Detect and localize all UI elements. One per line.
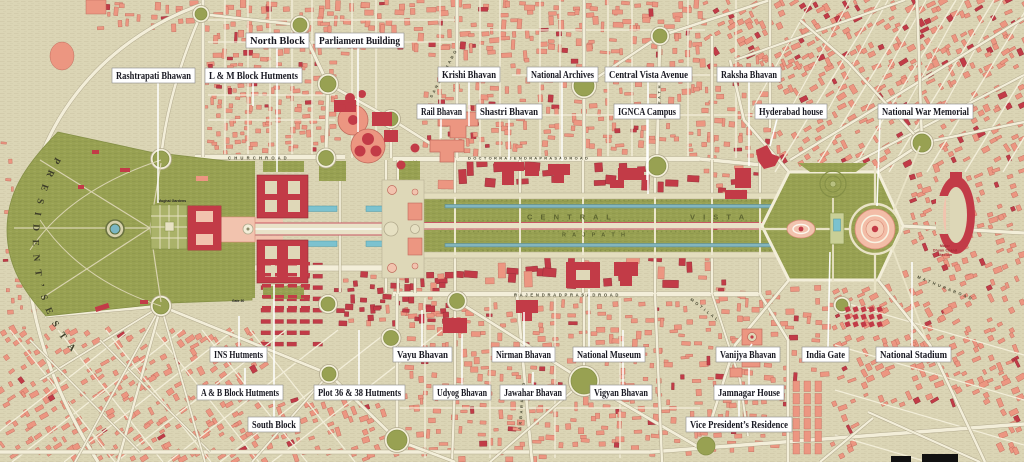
svg-text:National Museum: National Museum: [577, 349, 641, 361]
svg-text:Stadium: Stadium: [938, 253, 953, 257]
svg-text:National War Memorial: National War Memorial: [882, 106, 969, 118]
svg-text:Dhyan Chand: Dhyan Chand: [933, 249, 957, 253]
svg-text:North Block: North Block: [250, 35, 306, 47]
svg-text:R A J P A T H: R A J P A T H: [562, 233, 627, 239]
svg-text:Central Vista Avenue: Central Vista Avenue: [609, 69, 688, 81]
svg-text:Vigyan Bhavan: Vigyan Bhavan: [594, 387, 648, 399]
svg-text:Vice President’s Residence: Vice President’s Residence: [690, 419, 788, 431]
svg-text:Parliament Building: Parliament Building: [319, 35, 400, 47]
svg-text:Vanijya Bhavan: Vanijya Bhavan: [720, 349, 776, 361]
svg-text:Jawahar Bhavan: Jawahar Bhavan: [504, 387, 562, 399]
svg-text:Rashtrapati Bhawan: Rashtrapati Bhawan: [116, 70, 191, 82]
svg-text:South Block: South Block: [252, 419, 297, 431]
svg-text:Raksha Bhavan: Raksha Bhavan: [721, 69, 777, 81]
svg-text:India Gate: India Gate: [806, 349, 845, 361]
svg-text:A & B Block Hutments: A & B Block Hutments: [201, 387, 280, 399]
svg-text:IGNCA Campus: IGNCA Campus: [618, 106, 677, 118]
svg-text:L & M Block Hutments: L & M Block Hutments: [209, 70, 299, 82]
svg-text:INS Hutments: INS Hutments: [214, 349, 264, 361]
svg-text:Nirman Bhavan: Nirman Bhavan: [496, 349, 551, 361]
svg-text:Rail Bhavan: Rail Bhavan: [421, 106, 462, 118]
svg-text:National Archives: National Archives: [531, 69, 595, 81]
svg-text:National Stadium: National Stadium: [880, 349, 947, 361]
svg-text:Hyderabad house: Hyderabad house: [759, 106, 823, 118]
svg-text:Shastri Bhavan: Shastri Bhavan: [480, 106, 538, 118]
svg-text:V I S T A: V I S T A: [690, 213, 747, 222]
svg-text:Vayu Bhavan: Vayu Bhavan: [397, 349, 448, 361]
svg-text:Udyog Bhavan: Udyog Bhavan: [437, 387, 487, 399]
svg-text:Krishi Bhavan: Krishi Bhavan: [442, 69, 496, 81]
svg-text:Gate 30: Gate 30: [232, 299, 244, 303]
svg-text:C H U R C H R O A D: C H U R C H R O A D: [228, 156, 288, 161]
svg-text:Mughal Gardens: Mughal Gardens: [158, 199, 186, 203]
svg-text:C E N T R A L: C E N T R A L: [527, 213, 614, 222]
svg-text:Jamnagar House: Jamnagar House: [718, 387, 780, 399]
svg-text:D O C T O R R A J E N D R A: D O C T O R R A J E N D R A P R A S A D …: [468, 156, 588, 161]
svg-text:Major: Major: [940, 244, 951, 248]
svg-text:Plot 36 & 38 Hutments: Plot 36 & 38 Hutments: [318, 387, 402, 399]
svg-text:R A J E N D R A D P R A S A: R A J E N D R A D P R A S A D R O A D: [514, 293, 619, 298]
